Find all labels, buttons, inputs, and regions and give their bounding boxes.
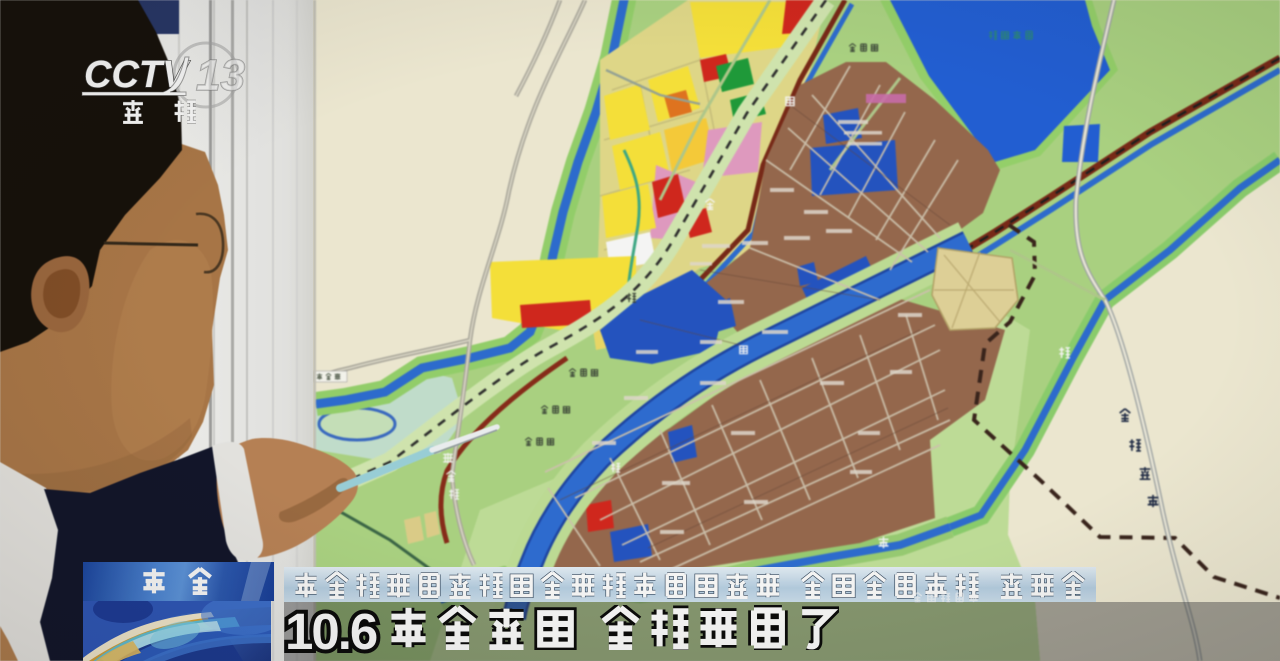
svg-text:10.6: 10.6	[285, 603, 377, 660]
svg-text:13: 13	[196, 51, 245, 100]
